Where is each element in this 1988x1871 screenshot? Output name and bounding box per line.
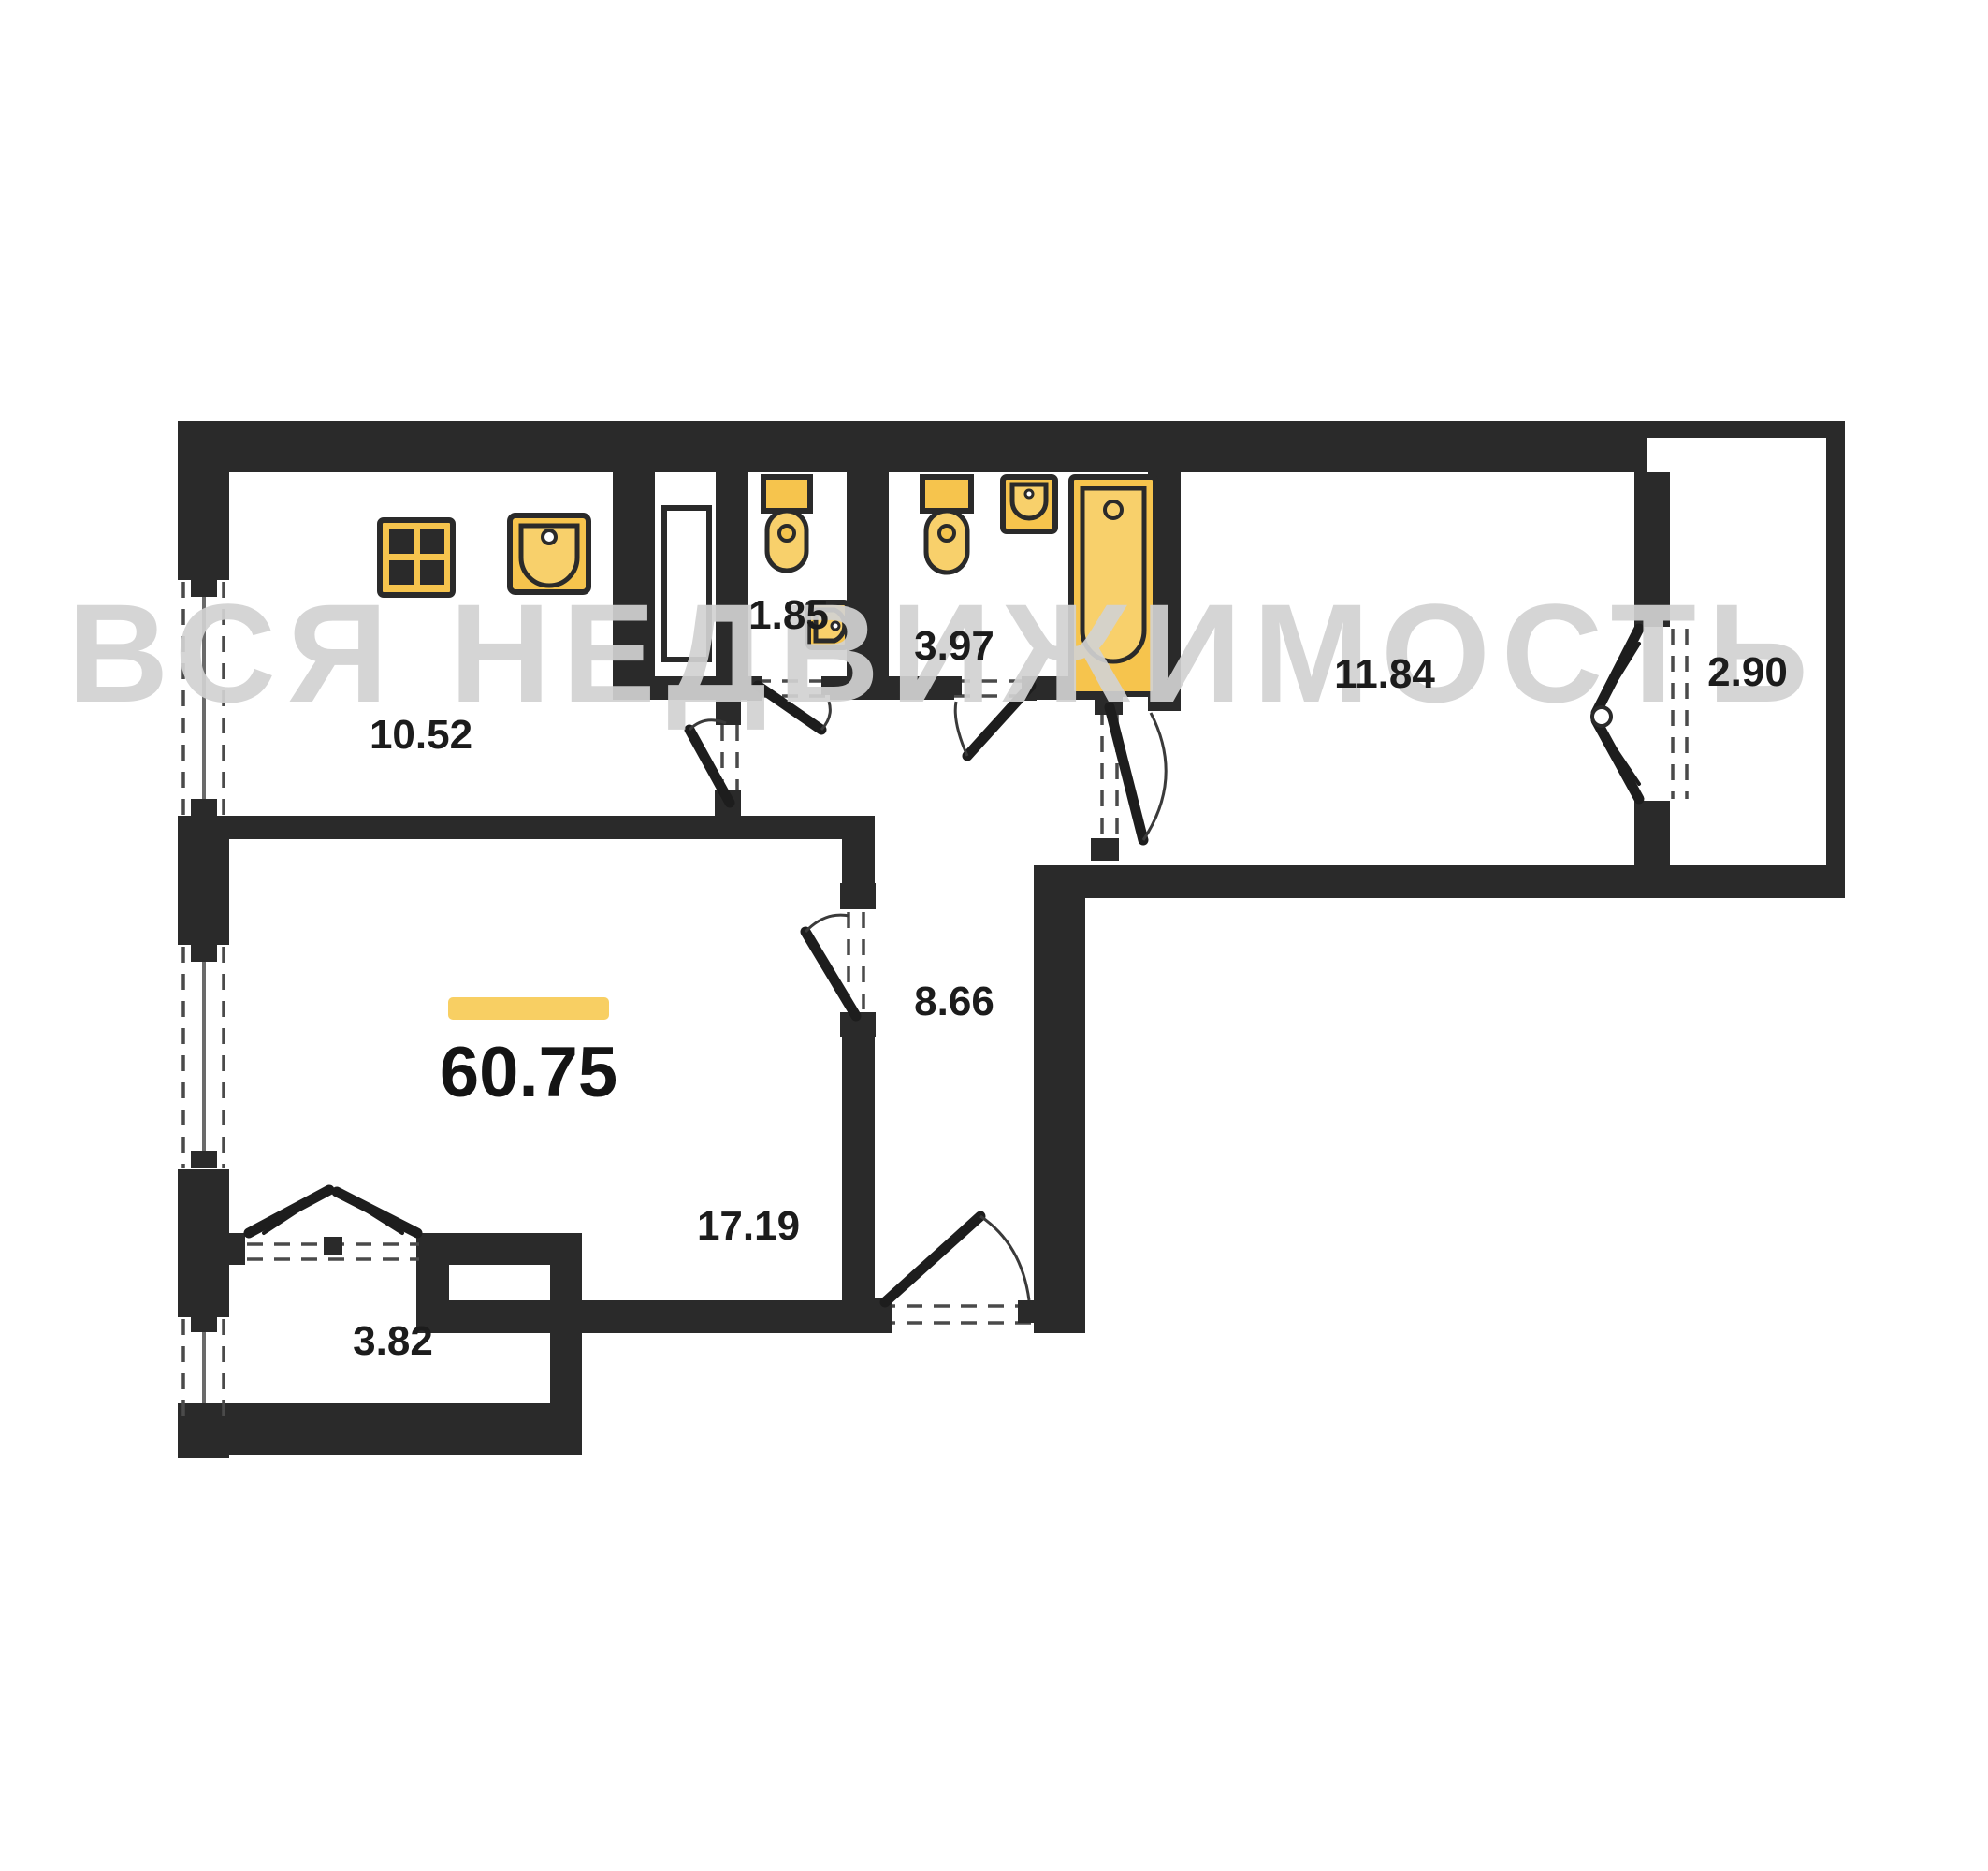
wall-living-hall-lower xyxy=(842,1015,875,1300)
wall-living-bottom xyxy=(416,1300,879,1333)
floor-plan-drawing xyxy=(0,0,1988,1871)
wall-left-seg1 xyxy=(178,421,229,580)
wall-kitchen-bottom xyxy=(178,816,875,839)
watermark-text: ВСЯ НЕДВИЖИМОСТЬ xyxy=(67,573,1820,734)
door-handle xyxy=(324,1237,342,1255)
wall-top xyxy=(178,421,1647,472)
floor-plan-image: ВСЯ НЕДВИЖИМОСТЬ 60.75 10.52 1.85 3.97 1… xyxy=(0,0,1988,1871)
wall-bedroom-bottom xyxy=(1034,865,1843,898)
bath-wall-sink-icon xyxy=(1003,477,1055,531)
wall-balcony-right-side xyxy=(1826,421,1845,898)
balcony-window xyxy=(183,1317,224,1418)
wall-balcony-lower-bottom xyxy=(178,1403,582,1455)
bath-toilet-icon xyxy=(922,477,971,573)
balcony-lower-french-door xyxy=(247,1190,419,1259)
entrance-door xyxy=(868,1216,1035,1333)
wc-toilet-icon xyxy=(763,477,810,571)
wall-bedroom-balcony-lower xyxy=(1634,801,1670,865)
wall-balcony-right-top xyxy=(1647,421,1845,438)
wall-balcony-lower-top-a xyxy=(178,1233,245,1265)
living-room-door xyxy=(805,883,876,1037)
wall-hall-right xyxy=(1034,865,1085,1333)
living-window xyxy=(183,945,224,1168)
